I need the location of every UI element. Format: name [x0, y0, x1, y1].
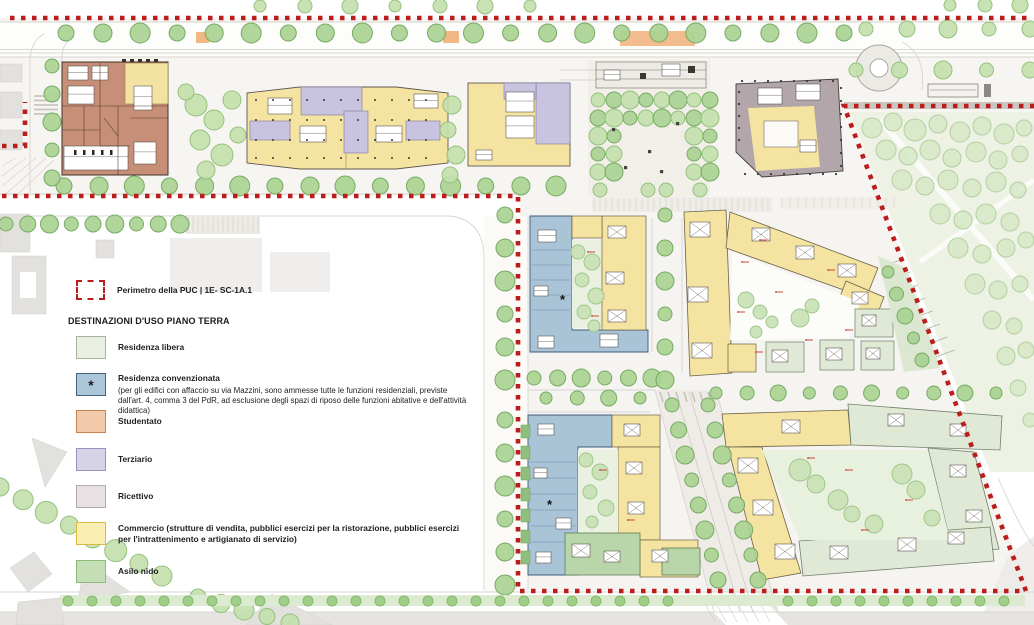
legend-panel: Perimetro della PUC | 1E- SC-1A.1DESTINA…	[64, 270, 476, 618]
legend-swatch-terziario	[76, 448, 106, 471]
legend-item-label: Residenza libera	[118, 342, 472, 353]
legend-item-commercio: Commercio (strutture di vendita, pubblic…	[76, 522, 472, 545]
legend-item-residenza-libera: Residenza libera	[76, 336, 472, 359]
legend-swatch-ricettivo	[76, 485, 106, 508]
legend-item-label: Studentato	[118, 416, 472, 427]
legend-item-label: Commercio (strutture di vendita, pubblic…	[118, 523, 472, 544]
ricettivo-commercio-building	[736, 79, 843, 177]
bus-shelter	[928, 84, 978, 97]
legend-title: DESTINAZIONI D'USO PIANO TERRA	[68, 316, 230, 326]
puc-perimeter-swatch	[76, 280, 105, 300]
legend-item-perimetro: Perimetro della PUC | 1E- SC-1A.1	[76, 280, 252, 300]
legend-item-terziario: Terziario	[76, 448, 472, 471]
legend-swatch-asilo-nido	[76, 560, 106, 583]
perimeter-label: Perimetro della PUC | 1E- SC-1A.1	[117, 285, 252, 295]
legend-swatch-commercio	[76, 522, 106, 545]
legend-item-studentato: Studentato	[76, 410, 472, 433]
legend-item-label: Asilo nido	[118, 566, 472, 577]
legend-item-label: Terziario	[118, 454, 472, 465]
legend-item-ricettivo: Ricettivo	[76, 485, 472, 508]
legend-swatch-residenza-libera	[76, 336, 106, 359]
legend-item-label: Residenza convenzionata	[118, 373, 472, 384]
masterplan-canvas: * * Perimetro della PUC | 1E- SC-1A.1DES…	[0, 0, 1034, 625]
legend-swatch-studentato	[76, 410, 106, 433]
legend-swatch-residenza-convenzionata: *	[76, 373, 106, 396]
legend-item-asilo-nido: Asilo nido	[76, 560, 472, 583]
legend-item-label: Ricettivo	[118, 491, 472, 502]
